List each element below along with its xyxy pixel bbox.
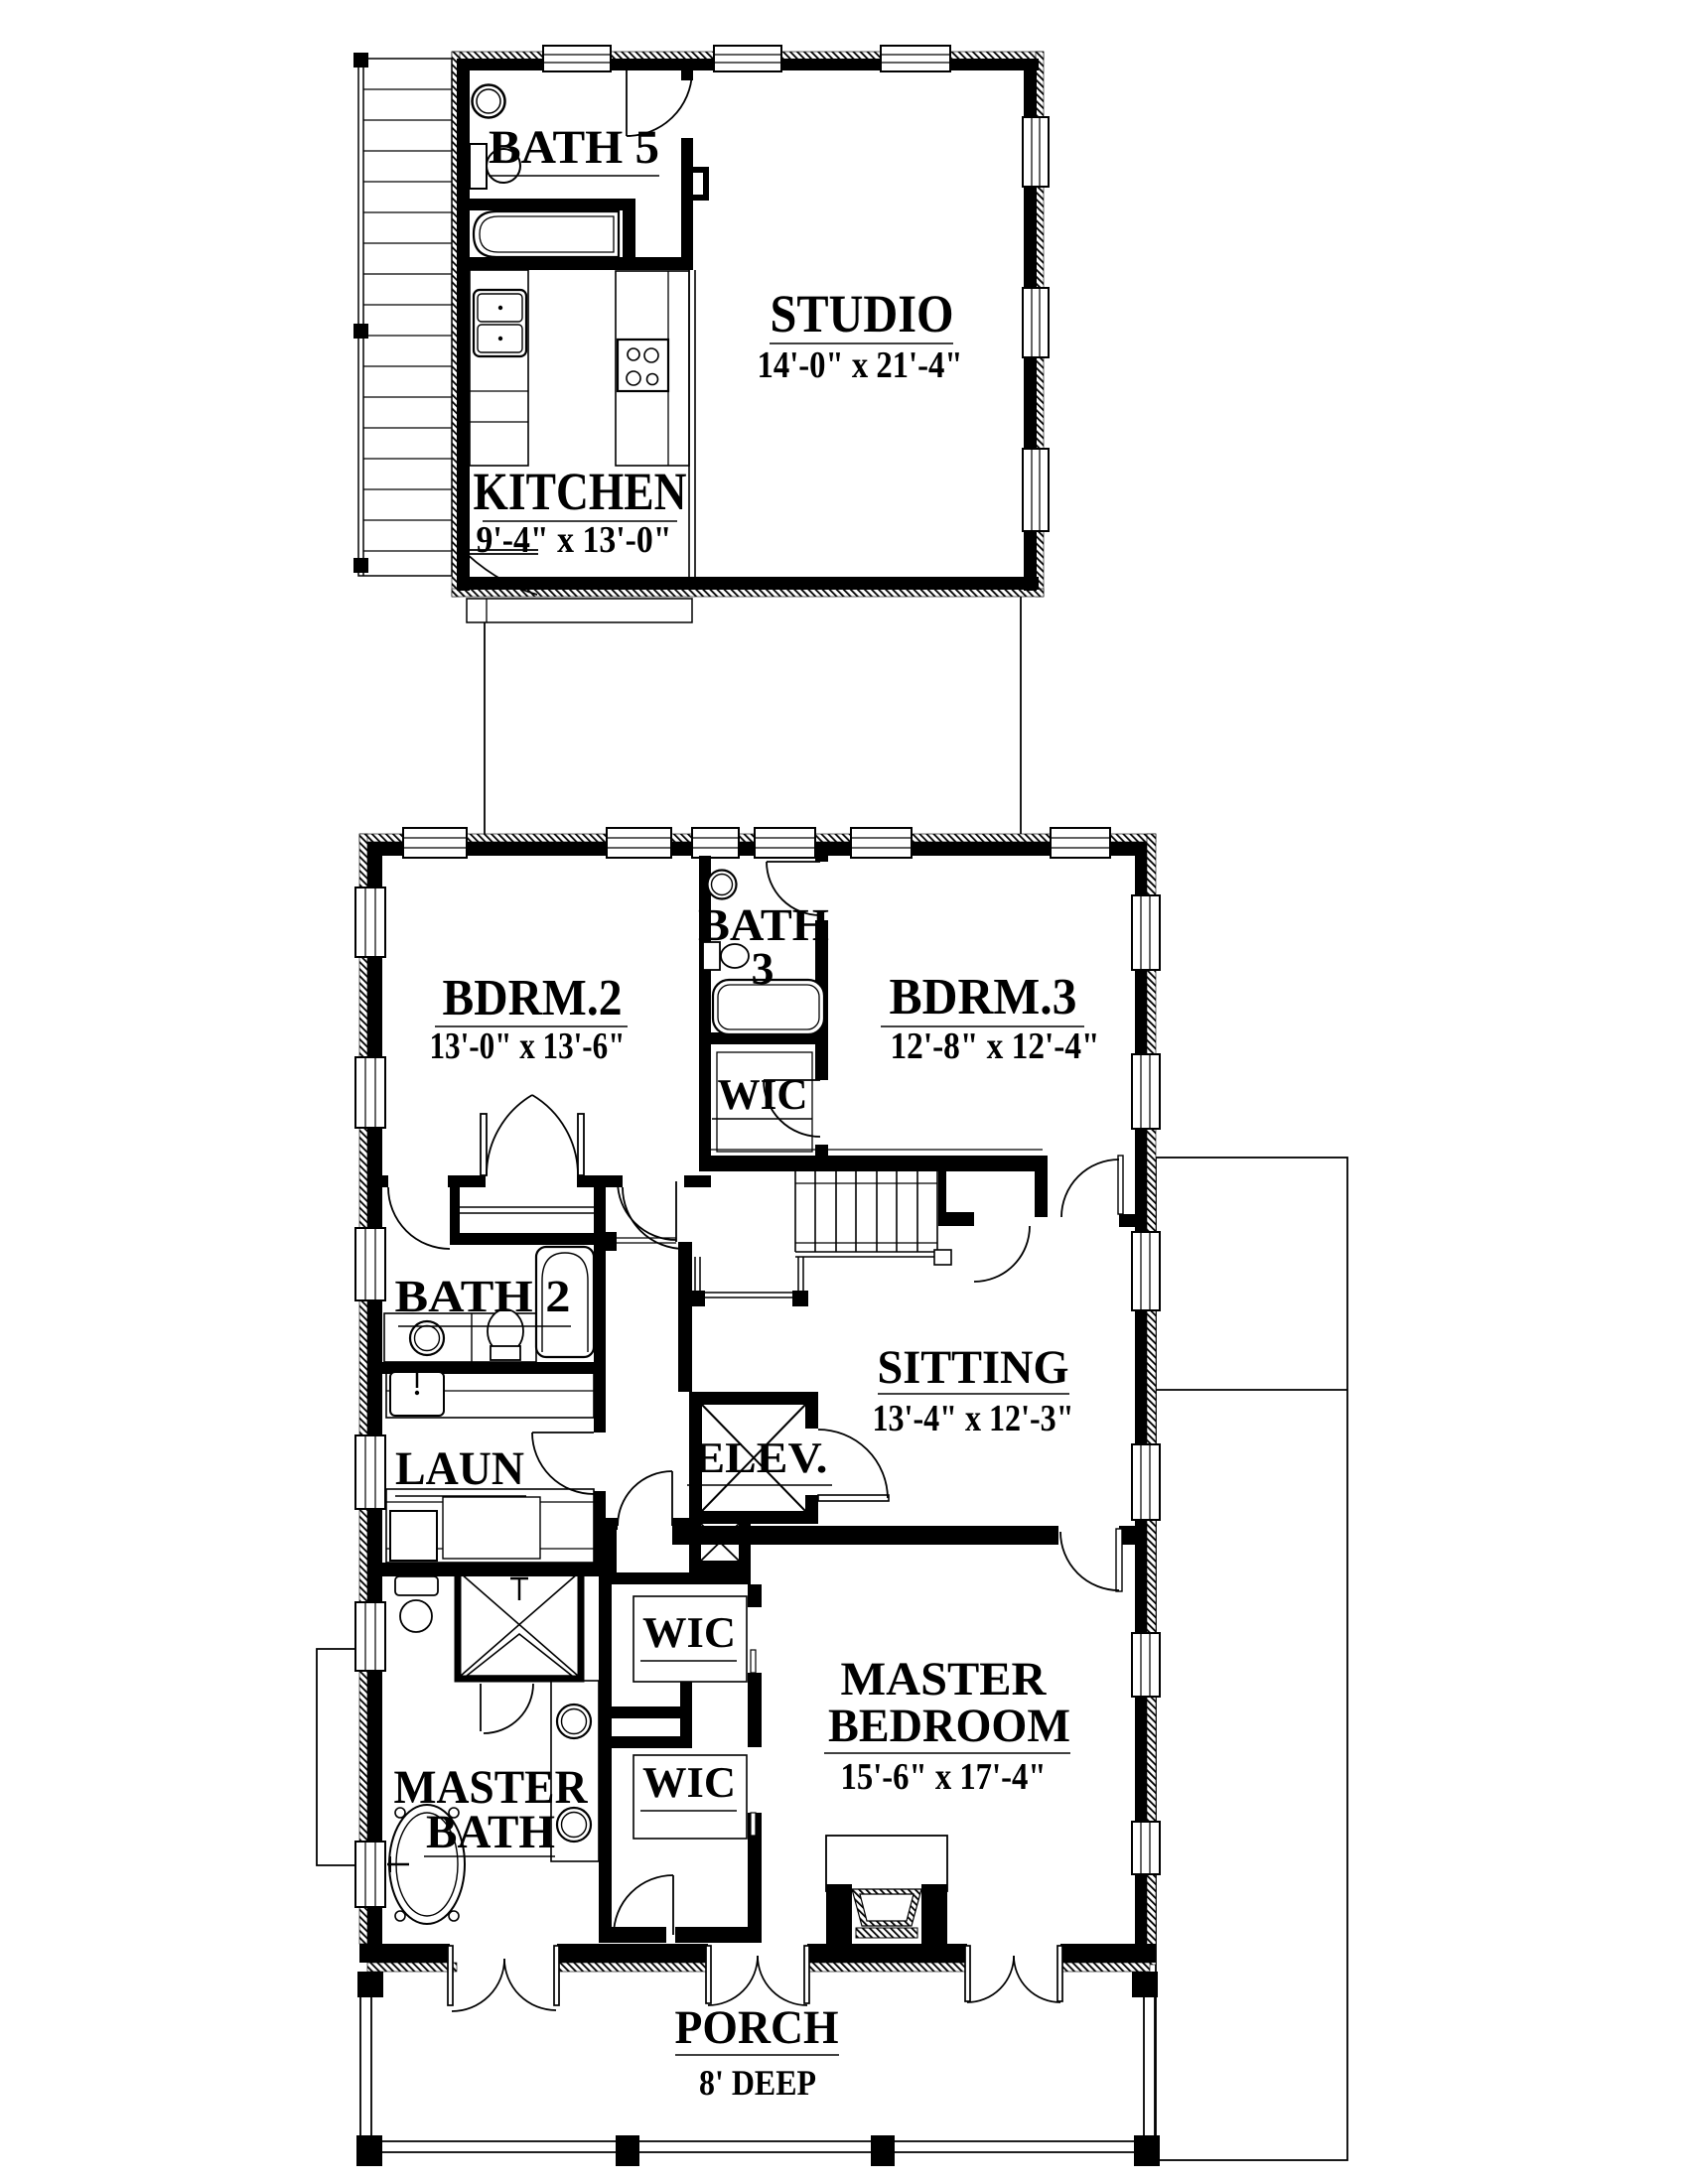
svg-text:9'-4" x 13'-0": 9'-4" x 13'-0" — [477, 519, 672, 561]
svg-text:15'-6" x 17'-4": 15'-6" x 17'-4" — [841, 1756, 1047, 1798]
svg-text:BDRM.3: BDRM.3 — [890, 969, 1077, 1025]
svg-text:BDRM.2: BDRM.2 — [443, 970, 623, 1026]
svg-text:BEDROOM: BEDROOM — [828, 1700, 1070, 1752]
svg-text:KITCHEN: KITCHEN — [474, 462, 687, 521]
svg-text:14'-0" x 21'-4": 14'-0" x 21'-4" — [758, 344, 963, 386]
svg-text:LAUN: LAUN — [395, 1442, 524, 1495]
svg-text:MASTER: MASTER — [841, 1653, 1048, 1706]
svg-text:WIC: WIC — [642, 1608, 736, 1657]
svg-text:13'-4" x 12'-3": 13'-4" x 12'-3" — [873, 1398, 1074, 1439]
svg-text:13'-0" x 13'-6": 13'-0" x 13'-6" — [430, 1025, 626, 1067]
svg-text:WIC: WIC — [718, 1070, 808, 1119]
svg-text:BATH 2: BATH 2 — [395, 1271, 571, 1321]
svg-text:ELEV.: ELEV. — [694, 1433, 828, 1482]
svg-text:BATH 5: BATH 5 — [489, 121, 659, 174]
svg-text:PORCH: PORCH — [675, 2001, 839, 2054]
svg-text:STUDIO: STUDIO — [771, 284, 954, 343]
svg-text:WIC: WIC — [642, 1758, 736, 1807]
svg-text:8' DEEP: 8' DEEP — [699, 2063, 816, 2103]
svg-text:12'-8" x 12'-4": 12'-8" x 12'-4" — [891, 1025, 1100, 1067]
svg-text:BATH: BATH — [426, 1806, 555, 1858]
svg-text:SITTING: SITTING — [878, 1341, 1069, 1394]
svg-text:3: 3 — [752, 943, 774, 994]
